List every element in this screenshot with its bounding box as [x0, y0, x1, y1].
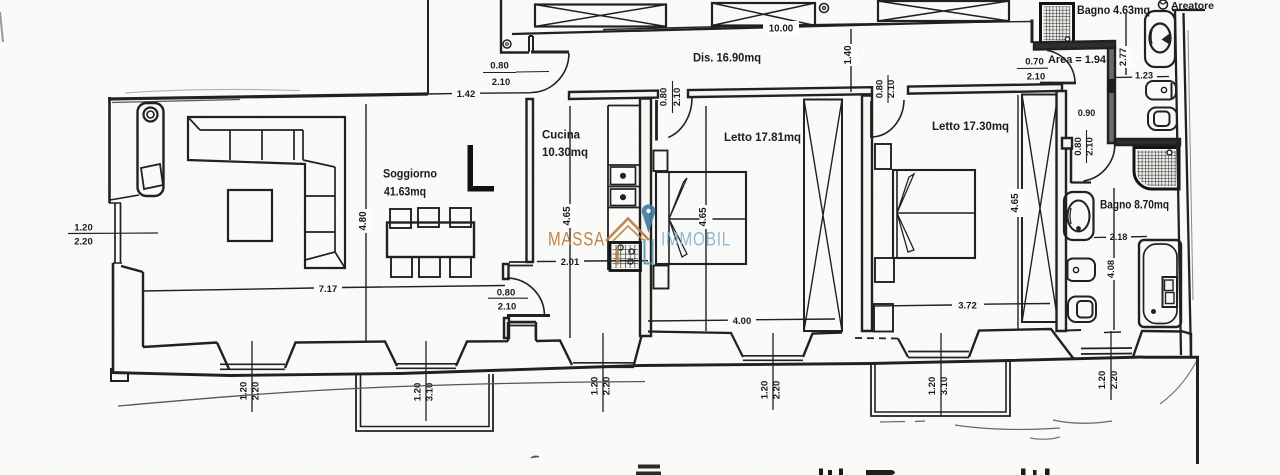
svg-text:2.20: 2.20 [74, 237, 93, 248]
svg-text:2.10: 2.10 [672, 88, 683, 107]
svg-text:7.17: 7.17 [319, 284, 338, 295]
svg-text:2.18: 2.18 [1110, 232, 1128, 242]
svg-text:Dis. 16.90mq: Dis. 16.90mq [693, 51, 761, 65]
svg-text:0.70: 0.70 [1025, 57, 1044, 68]
svg-text:1.20: 1.20 [1097, 371, 1108, 390]
svg-text:4.65: 4.65 [698, 207, 709, 227]
svg-text:Letto 17.81mq: Letto 17.81mq [724, 130, 801, 144]
svg-text:0.80: 0.80 [875, 80, 886, 99]
svg-text:MASSA: MASSA [548, 229, 605, 251]
svg-text:10.30mq: 10.30mq [542, 145, 588, 159]
svg-text:Letto 17.30mq: Letto 17.30mq [932, 119, 1009, 133]
svg-text:4.65: 4.65 [562, 206, 573, 226]
svg-text:0.80: 0.80 [497, 288, 516, 299]
svg-text:Cucina: Cucina [542, 128, 580, 142]
svg-text:Area = 1.94: Area = 1.94 [1048, 54, 1106, 66]
svg-text:4.80: 4.80 [358, 211, 369, 231]
svg-text:0.90: 0.90 [1078, 108, 1096, 118]
svg-text:0.80: 0.80 [1073, 137, 1084, 156]
svg-text:1.20: 1.20 [239, 382, 250, 401]
svg-text:0.80: 0.80 [659, 88, 670, 107]
svg-text:4.08: 4.08 [1106, 260, 1116, 278]
svg-text:2.10: 2.10 [1027, 72, 1046, 83]
svg-text:1.20: 1.20 [74, 223, 93, 234]
svg-text:1.20: 1.20 [760, 381, 771, 400]
svg-text:1.20: 1.20 [590, 377, 601, 396]
svg-text:Soggiorno: Soggiorno [383, 167, 437, 181]
svg-text:2.20: 2.20 [1109, 371, 1120, 390]
svg-text:4.00: 4.00 [733, 316, 752, 327]
svg-text:IMMOBIL: IMMOBIL [661, 229, 731, 251]
svg-text:Bagno 8.70mq: Bagno 8.70mq [1100, 200, 1169, 212]
svg-text:3.10: 3.10 [939, 377, 950, 396]
svg-text:2.20: 2.20 [251, 382, 262, 401]
svg-text:4.65: 4.65 [1010, 193, 1021, 213]
svg-text:2.01: 2.01 [561, 257, 580, 268]
svg-text:2.10: 2.10 [1085, 137, 1096, 156]
svg-text:2.10: 2.10 [886, 80, 897, 99]
svg-text:0.80: 0.80 [490, 61, 509, 72]
svg-text:1.20: 1.20 [927, 377, 938, 396]
svg-text:2.10: 2.10 [498, 302, 517, 313]
svg-text:10.00: 10.00 [769, 24, 794, 35]
svg-text:2.20: 2.20 [602, 377, 613, 396]
svg-text:1.23: 1.23 [1135, 71, 1153, 81]
svg-text:41.63mq: 41.63mq [384, 185, 426, 199]
svg-text:1.42: 1.42 [457, 89, 476, 100]
svg-text:3.72: 3.72 [958, 301, 977, 312]
svg-text:2.77: 2.77 [1118, 48, 1128, 66]
svg-text:2.10: 2.10 [492, 77, 511, 88]
svg-text:Bagno 4.63mq: Bagno 4.63mq [1077, 3, 1150, 17]
svg-text:2.20: 2.20 [772, 381, 783, 400]
svg-text:1.40: 1.40 [843, 45, 854, 65]
